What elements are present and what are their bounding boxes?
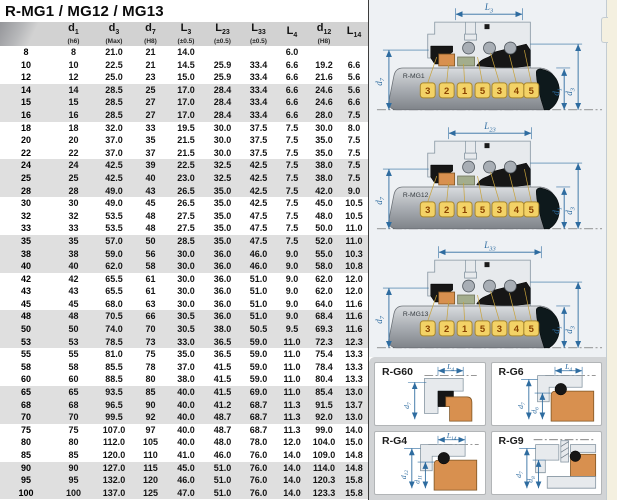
dimension-value: 28.4 <box>204 84 241 97</box>
dimension-value: 10.8 <box>340 260 368 273</box>
dimension-value: 78.4 <box>308 361 340 374</box>
dimension-value <box>241 46 276 59</box>
dimension-value: 7.5 <box>276 235 308 248</box>
dimension-value: 59.0 <box>241 361 276 374</box>
dimension-value: 30.0 <box>168 273 204 286</box>
dimension-value: 37.0 <box>168 361 204 374</box>
dimension-value: 28.5 <box>95 96 133 109</box>
dimension-value: 35.0 <box>308 134 340 147</box>
dimension-value: 41.5 <box>204 373 241 386</box>
dimension-value: 76.0 <box>241 474 276 487</box>
dimension-value: 28.5 <box>168 235 204 248</box>
dimension-value: 11.0 <box>276 348 308 361</box>
dimension-value: 30.0 <box>168 285 204 298</box>
row-size-label: 33 <box>0 222 52 235</box>
seal-diagram-r-mg12: R-MG12 3 2 1 5 3 4 5 <box>369 119 607 238</box>
dimension-value: 65 <box>52 386 95 399</box>
dimension-value: 97 <box>133 424 168 437</box>
table-row: 454568.06330.036.051.09.064.011.6 <box>0 298 368 311</box>
dimension-value: 33.4 <box>241 84 276 97</box>
dimension-value: 17.0 <box>168 96 204 109</box>
dimension-value: 35.0 <box>204 222 241 235</box>
dimension-value: 35.0 <box>308 147 340 160</box>
part-number-tag: 3 <box>492 321 507 336</box>
row-size-label: 80 <box>0 436 52 449</box>
dimension-value: 41.5 <box>204 361 241 374</box>
dimension-value: 120.0 <box>95 449 133 462</box>
row-size-label: 48 <box>0 310 52 323</box>
row-size-label: 53 <box>0 336 52 349</box>
part-number-tag: 4 <box>509 83 524 98</box>
dimension-value: 7.5 <box>276 134 308 147</box>
gland-plate <box>535 445 558 473</box>
dimension-value: 28.0 <box>308 109 340 122</box>
dimension-value: 7.5 <box>276 147 308 160</box>
dimension-value: 76.0 <box>241 449 276 462</box>
table-row: 424265.56130.036.051.09.062.012.0 <box>0 273 368 286</box>
column-header-d7: d7 (H8) <box>133 22 168 46</box>
length-dimension-label: L33 <box>483 240 496 252</box>
dimension-value: 75 <box>52 424 95 437</box>
dimension-value: 37.5 <box>241 134 276 147</box>
page-title: R-MG1 / MG12 / MG13 <box>5 3 164 20</box>
seat-panel-title: R-G4 <box>382 435 407 447</box>
table-row: 8080112.010540.048.078.012.0104.015.0 <box>0 436 368 449</box>
dimension-value: 59.0 <box>241 373 276 386</box>
dimension-value: 8.0 <box>340 122 368 135</box>
dimension-value: 43 <box>52 285 95 298</box>
dimension-value: 41.0 <box>168 449 204 462</box>
dimension-value: 9.0 <box>276 273 308 286</box>
svg-text:2: 2 <box>444 86 449 97</box>
dimension-value: 50 <box>133 235 168 248</box>
dimension-value: 30.0 <box>168 248 204 261</box>
part-number-tag: 5 <box>475 202 490 217</box>
dimension-value: 7.5 <box>276 159 308 172</box>
row-size-label: 40 <box>0 260 52 273</box>
dimension-value: 68.7 <box>241 399 276 412</box>
dimension-value: 21.5 <box>168 147 204 160</box>
dimension-value: 11.0 <box>340 222 368 235</box>
dimension-value: 35 <box>133 134 168 147</box>
dimension-value: 59.0 <box>95 248 133 261</box>
seal-ring <box>458 295 475 304</box>
dimension-value: 80 <box>52 436 95 449</box>
dimension-value: 62.0 <box>308 273 340 286</box>
dimension-value: 24 <box>52 159 95 172</box>
seat-panel-r-g9: R-G9 d7 d8 <box>491 431 603 495</box>
dimension-value: 45.0 <box>168 462 204 475</box>
dimension-value: 50 <box>52 323 95 336</box>
dimension-value: 38 <box>52 248 95 261</box>
dimension-value: 14.0 <box>276 487 308 500</box>
dimension-value: 7.5 <box>276 222 308 235</box>
dimension-value: 73 <box>133 336 168 349</box>
dimension-value: 11.0 <box>340 235 368 248</box>
dimension-value: 13.3 <box>340 373 368 386</box>
dimension-value: 70.5 <box>95 310 133 323</box>
dimension-value: 40 <box>52 260 95 273</box>
spring <box>484 42 496 54</box>
dimension-value: 30.5 <box>168 323 204 336</box>
part-number-tag: 1 <box>457 321 472 336</box>
table-row: 505074.07030.538.050.59.569.311.6 <box>0 323 368 336</box>
dimension-value: 45 <box>133 197 168 210</box>
dimension-value: 48.7 <box>204 424 241 437</box>
svg-text:2: 2 <box>444 205 449 216</box>
svg-text:5: 5 <box>480 324 485 335</box>
table-row: 181832.03319.530.037.57.530.08.0 <box>0 122 368 135</box>
dimension-value: 40.0 <box>168 386 204 399</box>
dimension-value: 53.5 <box>95 210 133 223</box>
dimension-value: 42.5 <box>241 185 276 198</box>
dimension-value: 33.4 <box>241 96 276 109</box>
row-size-label: 90 <box>0 462 52 475</box>
dimension-value: 66 <box>133 310 168 323</box>
dimension-value: 78.0 <box>241 436 276 449</box>
dimension-value: 20 <box>52 134 95 147</box>
dimension-value: 42.5 <box>241 172 276 185</box>
dimension-value: 14 <box>52 84 95 97</box>
dimension-value: 68 <box>52 399 95 412</box>
dimension-value: 6.6 <box>276 96 308 109</box>
dimension-value: 37.0 <box>95 134 133 147</box>
svg-text:5: 5 <box>480 86 485 97</box>
dimension-label: d7 <box>402 402 413 409</box>
dimension-value: 48.0 <box>308 210 340 223</box>
dimension-value: 12.0 <box>340 285 368 298</box>
dimension-value: 36.0 <box>204 310 241 323</box>
dimension-value: 19.2 <box>308 59 340 72</box>
dimension-value: 65.5 <box>95 273 133 286</box>
svg-text:1: 1 <box>462 324 467 335</box>
dimension-value: 35.0 <box>204 185 241 198</box>
dimension-value: 42.5 <box>241 159 276 172</box>
dimension-value: 14.0 <box>276 449 308 462</box>
seal-diagram-stack: R-MG1 3 2 1 5 3 4 5 <box>369 0 607 357</box>
dimension-value: 30.0 <box>168 260 204 273</box>
dimension-value: 51.0 <box>241 298 276 311</box>
page-edge-strip <box>606 0 617 500</box>
dimension-value: 14.0 <box>276 474 308 487</box>
dimension-value: 47.5 <box>241 235 276 248</box>
dimension-value: 23 <box>133 71 168 84</box>
svg-text:3: 3 <box>497 324 502 335</box>
table-row: 8821.02114.06.0 <box>0 46 368 59</box>
dimension-value: 99.0 <box>308 424 340 437</box>
dimension-value: 99.5 <box>95 411 133 424</box>
dimension-value: 91.5 <box>308 399 340 412</box>
dimension-value: 35.0 <box>204 235 241 248</box>
part-number-tag: 1 <box>457 83 472 98</box>
dimension-value: 6.6 <box>340 59 368 72</box>
svg-text:3: 3 <box>497 86 502 97</box>
dimension-value: 51.0 <box>241 310 276 323</box>
column-header-blank <box>0 22 52 46</box>
dimension-value: 51.0 <box>204 462 241 475</box>
part-number-tag: 3 <box>420 83 435 98</box>
dimension-value: 7.5 <box>276 122 308 135</box>
dimension-value: 8 <box>52 46 95 59</box>
dimension-value: 75 <box>133 348 168 361</box>
dimension-value: 51.0 <box>204 474 241 487</box>
table-row: 9595132.012046.051.076.014.0120.315.8 <box>0 474 368 487</box>
dimension-value: 14.8 <box>340 462 368 475</box>
dimension-value: 28.5 <box>95 109 133 122</box>
column-header-l14: L14 <box>340 22 368 46</box>
dimension-value: 11.0 <box>276 386 308 399</box>
dimension-value: 33.4 <box>241 109 276 122</box>
dimension-value: 51.0 <box>241 285 276 298</box>
dimension-value: 30.0 <box>204 122 241 135</box>
seal-diagram-r-mg13: R-MG13 3 2 1 5 3 4 5 <box>369 238 607 357</box>
dimension-value: 13.0 <box>340 411 368 424</box>
set-screw <box>485 262 490 267</box>
table-row: 100100137.012547.051.076.014.0123.315.8 <box>0 487 368 500</box>
dimension-value: 53.5 <box>95 222 133 235</box>
seat-panel-grid: R-G60 L4 d7 R-G6 L4 d7 d6 R-G4 L <box>369 357 607 500</box>
dimension-value: 58.0 <box>308 260 340 273</box>
dimension-value: 9.0 <box>276 298 308 311</box>
dimension-value: 43 <box>133 185 168 198</box>
dimension-label: d7 <box>374 196 386 204</box>
dimension-value: 92 <box>133 411 168 424</box>
dimension-value: 6.0 <box>276 46 308 59</box>
dimension-value: 23.0 <box>168 172 204 185</box>
dimension-value: 25.0 <box>95 71 133 84</box>
dimension-value: 15 <box>52 96 95 109</box>
svg-text:1: 1 <box>462 205 467 216</box>
spring <box>463 42 475 54</box>
svg-text:5: 5 <box>529 86 534 97</box>
dimension-value: 37.0 <box>95 147 133 160</box>
table-row: 686896.59040.041.268.711.391.513.7 <box>0 399 368 412</box>
dimension-value: 110 <box>133 449 168 462</box>
dimension-value: 36.0 <box>204 248 241 261</box>
row-size-label: 75 <box>0 424 52 437</box>
dimension-value: 11.3 <box>276 399 308 412</box>
row-size-label: 85 <box>0 449 52 462</box>
table-row: 151528.52717.028.433.46.624.66.6 <box>0 96 368 109</box>
svg-text:5: 5 <box>529 324 534 335</box>
table-row: 585885.57837.041.559.011.078.413.3 <box>0 361 368 374</box>
row-size-label: 38 <box>0 248 52 261</box>
row-size-label: 16 <box>0 109 52 122</box>
table-row: 535378.57333.036.559.011.072.312.3 <box>0 336 368 349</box>
row-size-label: 65 <box>0 386 52 399</box>
dimension-value: 35 <box>52 235 95 248</box>
table-row: 434365.56130.036.051.09.062.012.0 <box>0 285 368 298</box>
dimension-value: 40.0 <box>168 436 204 449</box>
part-number-tag: 5 <box>475 83 490 98</box>
dimension-label: d3 <box>564 325 576 333</box>
table-row: 141428.52517.028.433.46.624.65.6 <box>0 84 368 97</box>
dimension-value: 85.4 <box>308 386 340 399</box>
column-header-l3: L3 (±0.5) <box>168 22 204 46</box>
dimension-value: 69.3 <box>308 323 340 336</box>
dimension-label: d7 <box>374 77 386 85</box>
part-number-tag: 3 <box>492 202 507 217</box>
dimension-value: 80 <box>133 373 168 386</box>
dimension-value: 74.0 <box>95 323 133 336</box>
dimension-value: 48 <box>133 222 168 235</box>
svg-text:5: 5 <box>529 205 534 216</box>
dimension-value: 28.4 <box>204 96 241 109</box>
dimension-value: 55.0 <box>308 248 340 261</box>
dimension-value: 49.0 <box>95 197 133 210</box>
svg-text:4: 4 <box>514 86 520 97</box>
dimension-value: 49.0 <box>95 185 133 198</box>
dimension-value: 56 <box>133 248 168 261</box>
dimension-value: 42 <box>52 273 95 286</box>
dimension-value: 132.0 <box>95 474 133 487</box>
dimension-value: 48.0 <box>204 436 241 449</box>
dimension-value: 68.7 <box>241 424 276 437</box>
dimension-value: 13.3 <box>340 361 368 374</box>
dimension-value: 9.0 <box>276 260 308 273</box>
dimension-value: 33 <box>52 222 95 235</box>
dimension-value: 6.6 <box>276 71 308 84</box>
dimension-value: 70 <box>133 323 168 336</box>
dimension-value: 26.5 <box>168 197 204 210</box>
diagram-model-label: R-MG13 <box>403 311 429 318</box>
r-mg1-cross-section: R-MG1 3 2 1 5 3 4 5 <box>369 0 607 119</box>
dimension-value: 42.5 <box>241 197 276 210</box>
dimension-label: d7 <box>514 471 525 478</box>
row-size-label: 43 <box>0 285 52 298</box>
dimension-table-body: 8821.02114.06.0101022.52114.525.933.46.6… <box>0 46 368 499</box>
dimension-value: 32.5 <box>204 159 241 172</box>
dimension-value <box>340 46 368 59</box>
part-number-tag: 2 <box>439 202 454 217</box>
row-size-label: 24 <box>0 159 52 172</box>
set-screw <box>485 143 490 148</box>
dimension-value: 21 <box>133 46 168 59</box>
dimension-value: 12 <box>52 71 95 84</box>
o-ring <box>570 451 581 462</box>
dimension-value: 11.0 <box>276 361 308 374</box>
dimension-value: 15.8 <box>340 487 368 500</box>
dimension-value: 107.0 <box>95 424 133 437</box>
set-screw <box>485 24 490 29</box>
table-header: d1 (h6) d3 (Max) d7 (H8) L3 (±0.5) L23 (… <box>0 22 368 46</box>
dimension-value: 18 <box>52 122 95 135</box>
r-mg12-cross-section: R-MG12 3 2 1 5 3 4 5 <box>369 119 607 238</box>
part-number-tag: 5 <box>475 321 490 336</box>
seal-face <box>439 173 455 185</box>
dimension-value: 32.5 <box>204 172 241 185</box>
dimension-value: 38.0 <box>204 323 241 336</box>
part-number-tag: 3 <box>420 321 435 336</box>
table-row: 333353.54827.535.047.57.550.011.0 <box>0 222 368 235</box>
seal-ring <box>458 57 475 66</box>
diagram-model-label: R-MG1 <box>403 73 425 80</box>
dimension-value: 39 <box>133 159 168 172</box>
dimension-value: 62.0 <box>308 285 340 298</box>
dimension-value: 13.7 <box>340 399 368 412</box>
dimension-value: 21 <box>133 59 168 72</box>
spring <box>463 161 475 173</box>
dimension-table: d1 (h6) d3 (Max) d7 (H8) L3 (±0.5) L23 (… <box>0 22 368 499</box>
table-row: 7575107.09740.048.768.711.399.014.0 <box>0 424 368 437</box>
dimension-value: 33.0 <box>168 336 204 349</box>
page-edge-notch <box>601 17 608 43</box>
dimension-value: 120.3 <box>308 474 340 487</box>
dimension-value: 30.0 <box>204 147 241 160</box>
dimension-value: 36.0 <box>204 285 241 298</box>
seal-face <box>439 292 455 304</box>
dimension-value: 30 <box>52 197 95 210</box>
dimension-value: 40.0 <box>168 399 204 412</box>
dimension-value: 14.0 <box>168 46 204 59</box>
dimension-value: 15.8 <box>340 474 368 487</box>
column-header-l33: L33 (±0.5) <box>241 22 276 46</box>
dimension-value: 41.5 <box>204 386 241 399</box>
dimension-value: 45 <box>52 298 95 311</box>
dimension-label: d7 <box>516 402 527 409</box>
dimension-value: 12.0 <box>276 436 308 449</box>
dimension-value: 100 <box>52 487 95 500</box>
dimension-value: 68.4 <box>308 310 340 323</box>
table-row: 222237.03721.530.037.57.535.07.5 <box>0 147 368 160</box>
dimension-value: 68.7 <box>241 411 276 424</box>
dimension-value: 51.0 <box>204 487 241 500</box>
svg-text:3: 3 <box>425 86 430 97</box>
dimension-value: 25 <box>52 172 95 185</box>
dimension-value: 10 <box>52 59 95 72</box>
dimension-value: 15.0 <box>168 71 204 84</box>
dimension-value: 13.3 <box>340 348 368 361</box>
dimension-value: 46.0 <box>241 248 276 261</box>
dimension-value: 19.5 <box>168 122 204 135</box>
dimension-value: 47.5 <box>241 222 276 235</box>
dimension-label: L14 <box>446 432 457 442</box>
dimension-label: L4 <box>564 363 572 373</box>
diagram-model-label: R-MG12 <box>403 192 429 199</box>
dimension-value: 28.5 <box>95 84 133 97</box>
part-number-tag: 3 <box>420 202 435 217</box>
table-row: 242442.53922.532.542.57.538.07.5 <box>0 159 368 172</box>
table-row: 202037.03521.530.037.57.535.07.5 <box>0 134 368 147</box>
dimension-value: 17.0 <box>168 109 204 122</box>
table-row: 383859.05630.036.046.09.055.010.3 <box>0 248 368 261</box>
dimension-value: 51.0 <box>241 273 276 286</box>
dimension-label: d7 <box>374 315 386 323</box>
spring <box>504 42 516 54</box>
dimension-value: 25.9 <box>204 59 241 72</box>
dimension-value: 22.5 <box>95 59 133 72</box>
dimension-value: 38.0 <box>308 172 340 185</box>
dimension-label: d3 <box>564 87 576 95</box>
row-size-label: 50 <box>0 323 52 336</box>
length-dimension-label: L23 <box>483 121 496 133</box>
dimension-value: 15.0 <box>340 436 368 449</box>
dimension-value: 81.0 <box>95 348 133 361</box>
dimension-value: 42.0 <box>308 185 340 198</box>
svg-text:3: 3 <box>425 205 430 216</box>
dimension-value: 114.0 <box>308 462 340 475</box>
column-header-d1: d1 (h6) <box>52 22 95 46</box>
dimension-value: 40.0 <box>168 411 204 424</box>
row-size-label: 12 <box>0 71 52 84</box>
dimension-value: 9.5 <box>276 323 308 336</box>
row-size-label: 30 <box>0 197 52 210</box>
row-size-label: 15 <box>0 96 52 109</box>
dimension-value: 60 <box>52 373 95 386</box>
dimension-value: 55 <box>52 348 95 361</box>
dimension-value: 42.5 <box>95 159 133 172</box>
svg-text:1: 1 <box>462 86 467 97</box>
